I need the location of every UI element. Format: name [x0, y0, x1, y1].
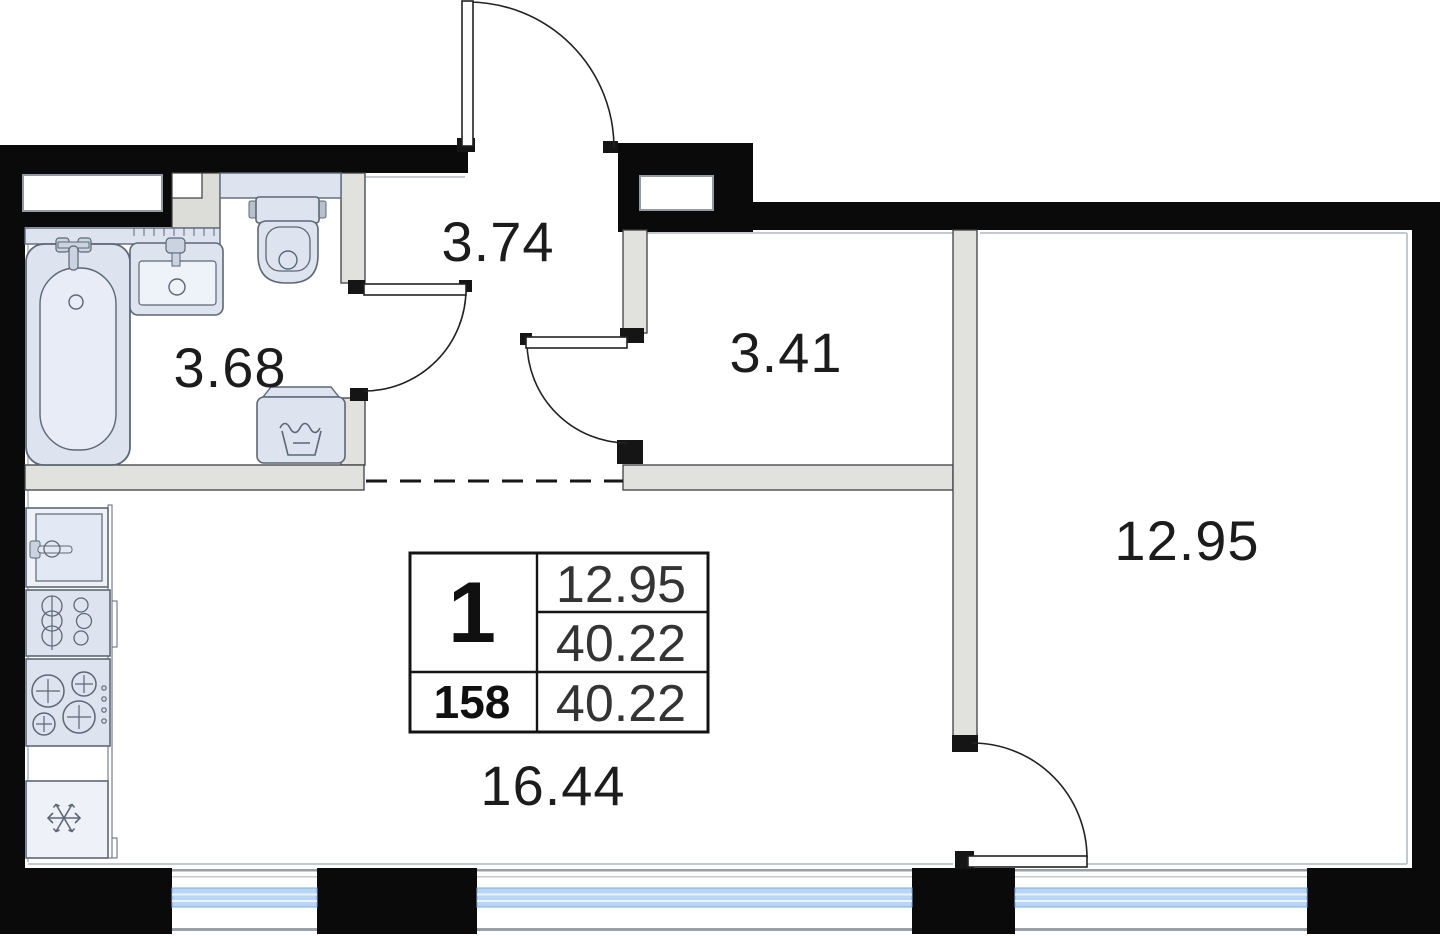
- kitchen-tap-lever: [38, 546, 72, 553]
- duct-shaft-opening: [172, 173, 202, 198]
- toilet-bowl: [258, 221, 318, 283]
- door-jamb-block: [603, 141, 618, 153]
- door-leaf: [462, 1, 473, 146]
- wall-bottom-pier-1: [0, 868, 172, 934]
- window-2: [477, 869, 912, 931]
- hob-icon: [26, 659, 110, 746]
- cabinet-handle: [112, 838, 117, 858]
- wall-bottom-pier-2: [317, 868, 477, 934]
- info-card-unit-number: 158: [434, 676, 511, 728]
- window-glass: [1015, 888, 1307, 907]
- washbasin-tap: [166, 238, 185, 253]
- toilet-icon: [220, 173, 341, 283]
- window-sill-line: [477, 928, 912, 931]
- boiler-cabinet: [26, 590, 110, 656]
- window-glass-highlight: [172, 900, 317, 902]
- window-frame-line: [172, 876, 317, 878]
- wall-bottom-pier-4: [1307, 868, 1440, 934]
- fridge-icon: [26, 781, 108, 858]
- window-frame-line: [477, 876, 912, 878]
- partition-corridor: [623, 230, 647, 333]
- washbasin-bowl: [139, 261, 216, 305]
- washbasin-icon: [130, 238, 223, 315]
- wall-left: [0, 145, 25, 934]
- door-jamb-block: [350, 388, 368, 401]
- room-label-hallway: 3.74: [442, 210, 555, 273]
- wall-right: [1412, 202, 1440, 868]
- info-card-area-mid: 40.22: [556, 615, 686, 673]
- partition-corridor-bottom: [623, 465, 953, 490]
- window-frame-line: [477, 869, 912, 872]
- window-3: [1015, 869, 1307, 931]
- window-frame-line: [1015, 876, 1307, 878]
- room-label-bathroom: 3.68: [174, 336, 287, 399]
- info-card: 1 158 12.95 40.22 40.22: [410, 553, 708, 733]
- window-glass-highlight: [477, 894, 912, 896]
- partition-bathroom-bottom: [25, 465, 364, 490]
- bathroom-door: [348, 280, 472, 401]
- entry-wall-niche: [640, 176, 713, 210]
- info-card-living-area: 12.95: [556, 556, 686, 614]
- door-jamb-block: [617, 440, 643, 464]
- window-frame-line: [172, 869, 317, 872]
- window-glass-highlight: [172, 894, 317, 896]
- bedroom-door: [952, 735, 1087, 869]
- door-swing-arc: [364, 289, 466, 391]
- door-swing-arc: [972, 743, 1087, 858]
- corridor-door: [520, 328, 644, 464]
- window-sill-line: [1015, 928, 1307, 931]
- partition-bedroom-left: [953, 230, 977, 738]
- info-card-rooms-count: 1: [448, 565, 496, 661]
- bathroom-wall-niche: [23, 175, 162, 211]
- floor-plan: 3.74 3.68 3.41 12.95 16.44 1 158 12.95 4…: [0, 0, 1440, 936]
- window-sill-line: [172, 928, 317, 931]
- room-label-bedroom: 12.95: [1114, 509, 1259, 572]
- floor-plan-canvas: 3.74 3.68 3.41 12.95 16.44 1 158 12.95 4…: [0, 0, 1440, 936]
- room-label-kitchen-living: 16.44: [480, 754, 625, 817]
- partition-bathroom-upper: [341, 173, 365, 283]
- fridge-body: [26, 781, 108, 858]
- room-label-corridor: 3.41: [730, 321, 843, 384]
- kitchen-fixtures: [26, 505, 117, 858]
- kitchen-sink-icon: [26, 508, 108, 587]
- window-glass: [477, 888, 912, 907]
- bathroom-counter: [25, 228, 220, 244]
- door-hinge-block: [348, 280, 365, 294]
- window-frame-line: [1015, 869, 1307, 872]
- door-leaf: [526, 337, 627, 348]
- window-glass-highlight: [1015, 894, 1307, 896]
- door-leaf: [968, 856, 1087, 867]
- door-swing-arc: [527, 342, 627, 443]
- wall-top-right: [753, 202, 1412, 230]
- bathtub-spout: [69, 246, 78, 270]
- boiler-cabinet-icon: [26, 590, 110, 656]
- entry-door: [457, 1, 618, 153]
- window-glass-highlight: [1015, 900, 1307, 902]
- washing-machine-body: [257, 397, 345, 463]
- info-card-total-area: 40.22: [556, 675, 686, 733]
- door-swing-arc: [468, 2, 614, 148]
- window-glass: [172, 888, 317, 907]
- bathtub-icon: [26, 238, 130, 465]
- cabinet-handle: [112, 601, 117, 647]
- wall-bottom-pier-3: [912, 868, 1015, 934]
- window-1: [172, 869, 317, 931]
- washbasin-tap-spout: [172, 253, 180, 266]
- toilet-tank: [256, 197, 319, 223]
- door-leaf: [364, 284, 466, 295]
- toilet-ledge: [220, 173, 341, 198]
- wall-top-a: [218, 145, 468, 173]
- window-glass-highlight: [477, 900, 912, 902]
